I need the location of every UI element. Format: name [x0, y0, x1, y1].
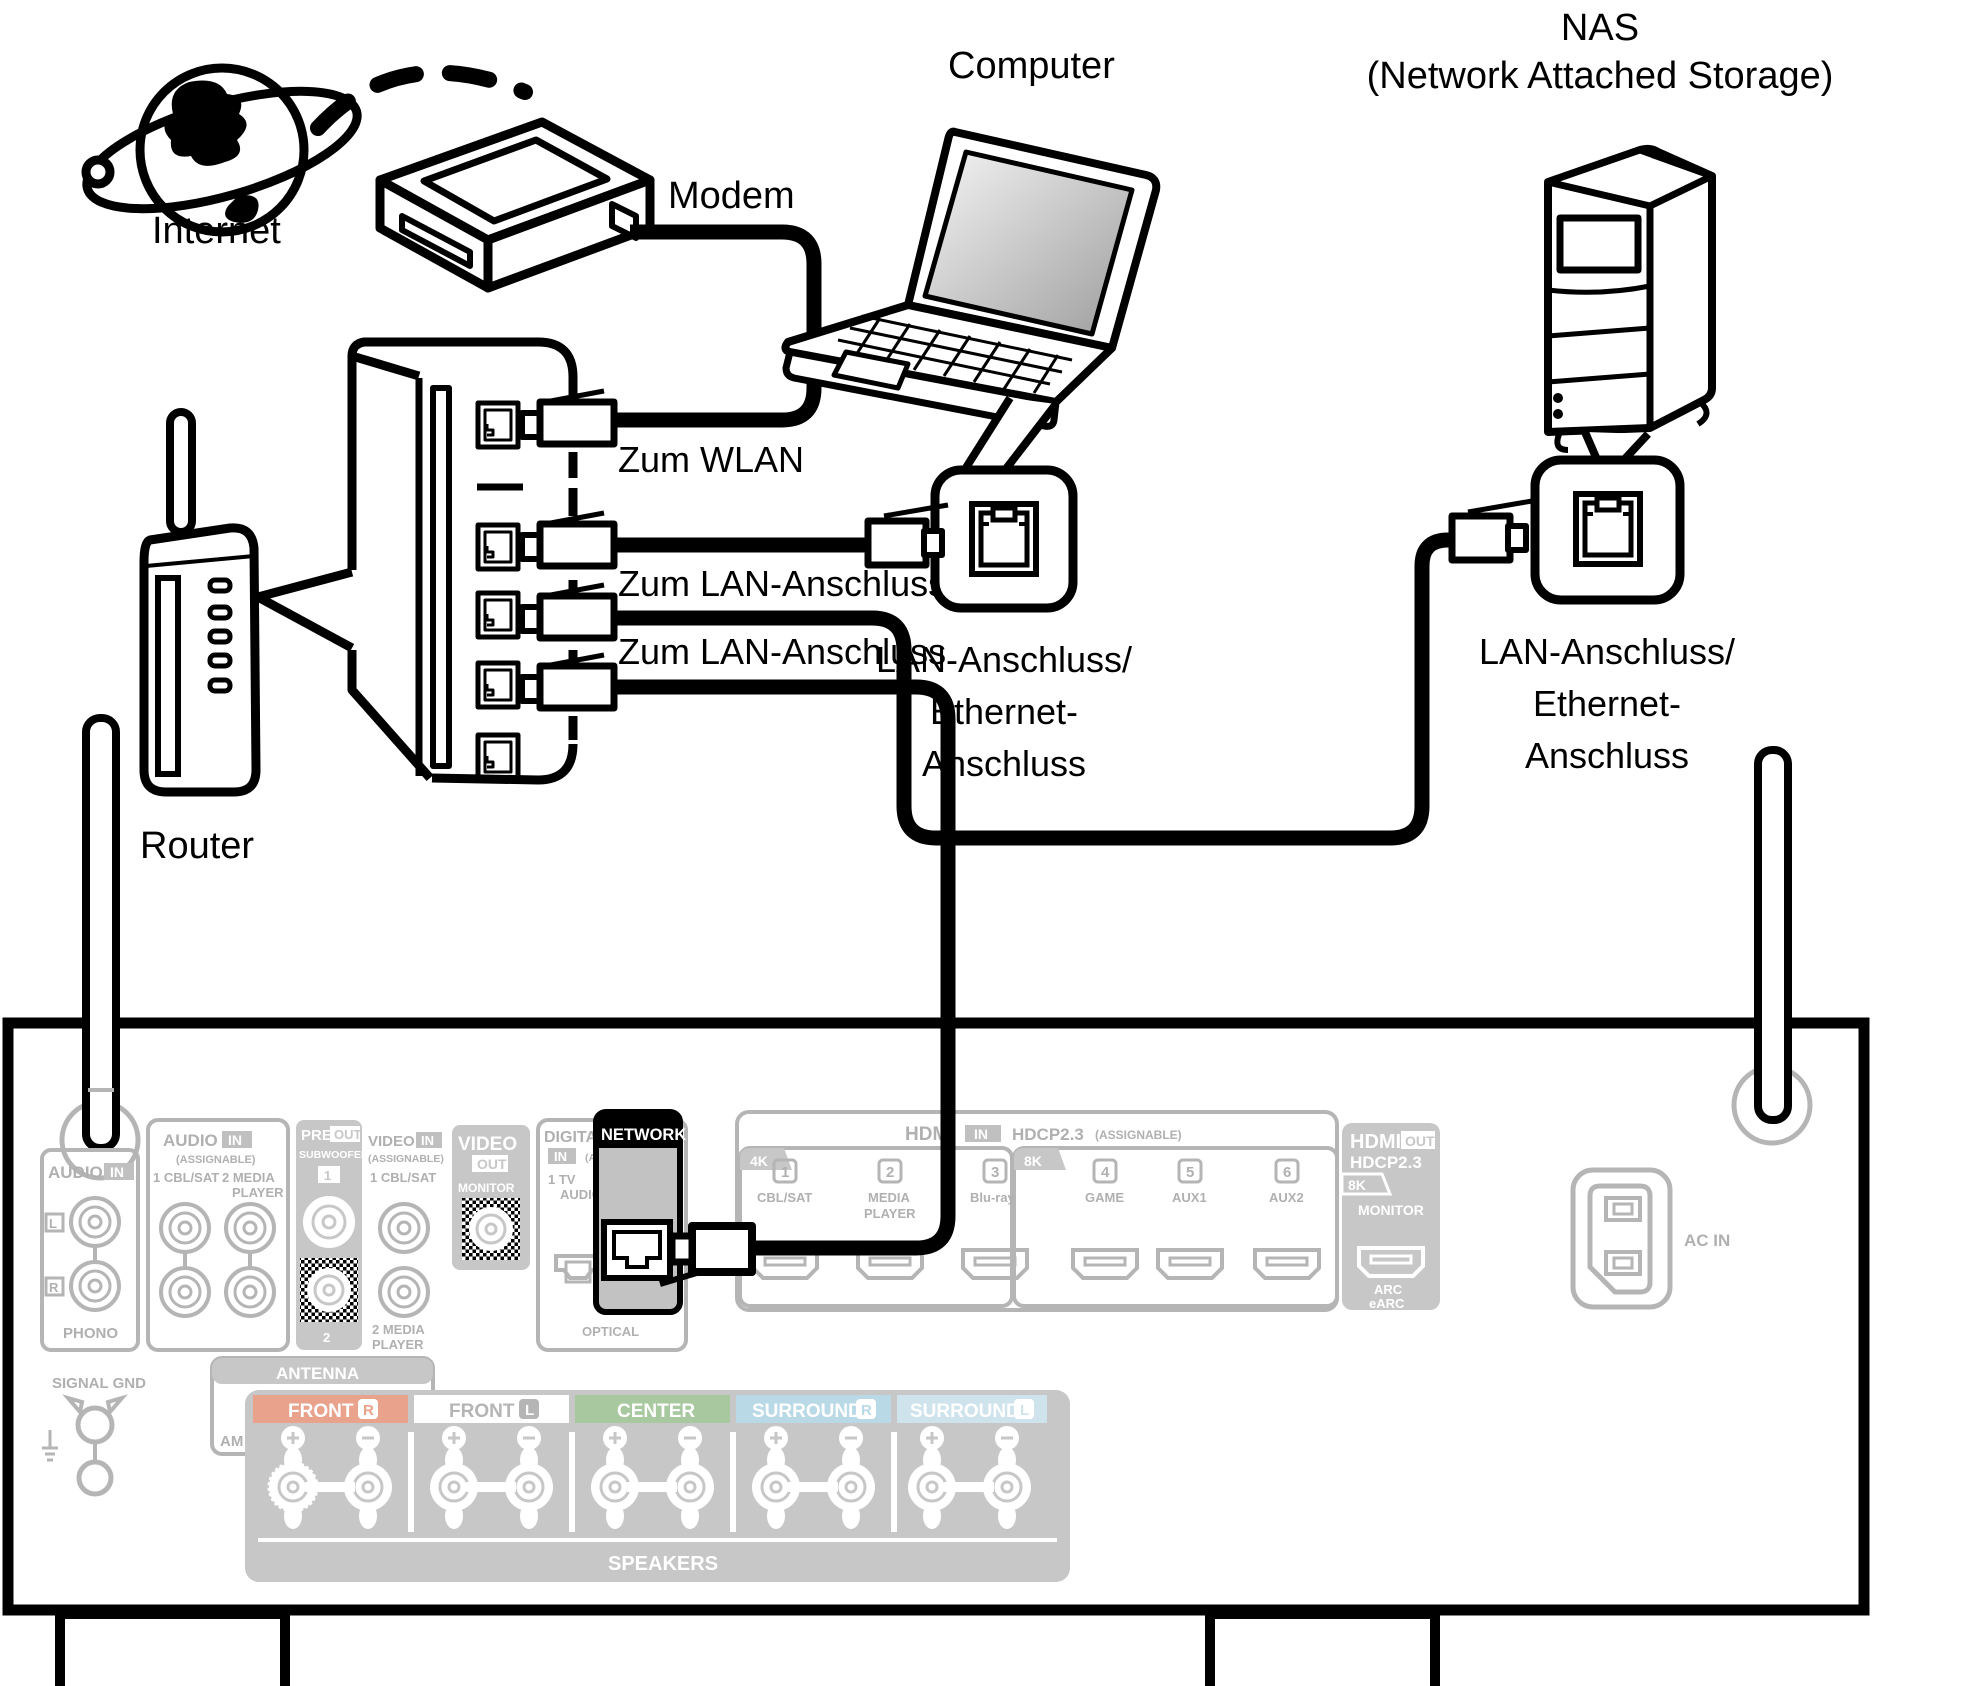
phono-r-label: R [49, 1280, 59, 1295]
speaker-ch-front-r: R [363, 1402, 374, 1419]
hdmi-in-assignable: (ASSIGNABLE) [1095, 1128, 1182, 1142]
speaker-ch-surround-l: L [1020, 1402, 1029, 1419]
videoout-badge: OUT [477, 1156, 507, 1172]
network-label: NETWORK [601, 1126, 686, 1144]
audio-in-badge: IN [110, 1164, 124, 1180]
speakers-block: FRONT R FRONT L CENTER SURROUND R SURROU… [245, 1390, 1070, 1582]
wireless-link-dashes [318, 73, 525, 128]
hdmi-out-monitor: MONITOR [1358, 1202, 1424, 1218]
videoin-2a: 2 MEDIA [372, 1322, 425, 1337]
hdmi-out-hdcp: HDCP2.3 [1350, 1153, 1422, 1172]
speaker-label-front-r: FRONT [288, 1401, 354, 1422]
receiver-rear-panel: AUDIO IN L R PHONO SIGNAL GND [8, 718, 1864, 1686]
hdmi2-name: MEDIA [868, 1190, 911, 1205]
phono-label: PHONO [63, 1325, 118, 1342]
pre-out-block: PRE OUT SUBWOOFER 1 2 [296, 1120, 369, 1350]
router-lan-jacks [478, 403, 518, 779]
videoin-2b: PLAYER [372, 1337, 424, 1352]
hdmi-out-badge: OUT [1405, 1133, 1435, 1149]
network-connection-diagram: AUDIO IN L R PHONO SIGNAL GND [0, 0, 1987, 1686]
hdmi4-num: 4 [1101, 1164, 1110, 1181]
receiver-foot-right [1210, 1614, 1435, 1686]
signal-gnd-label: SIGNAL GND [52, 1375, 146, 1392]
videoout-label: VIDEO [458, 1134, 517, 1155]
audio2-assignable: (ASSIGNABLE) [176, 1154, 256, 1166]
svg-text:LAN-Anschluss/: LAN-Anschluss/ [1479, 631, 1735, 672]
speaker-ch-front-l: L [525, 1402, 534, 1419]
phono-l-label: L [49, 1216, 57, 1231]
router-port-plugs [522, 391, 614, 708]
preout-2: 2 [323, 1330, 330, 1345]
speaker-label-surround-l: SURROUND [910, 1401, 1020, 1422]
router-icon [144, 412, 256, 792]
svg-text:LAN-Anschluss/: LAN-Anschluss/ [876, 639, 1132, 680]
am-label: AM [220, 1433, 243, 1450]
hdmi-4k-tab: 4K [750, 1153, 768, 1169]
internet-label: Internet [152, 210, 281, 252]
preout-1: 1 [324, 1168, 331, 1183]
nas-icon [1548, 149, 1712, 450]
wifi-antenna-right [1758, 750, 1788, 1120]
cable-modem-to-router [614, 232, 814, 420]
modem-icon [380, 122, 650, 288]
videoout-monitor: MONITOR [458, 1181, 515, 1195]
modem-label: Modem [668, 175, 795, 217]
hdmi-out-hdmi: HDMI [1350, 1131, 1401, 1153]
digaudio-1a: 1 TV [548, 1172, 576, 1187]
router-callout-wedge [258, 572, 352, 648]
nas-label-line1: NAS [1561, 7, 1639, 49]
hdmi2-name2: PLAYER [864, 1206, 916, 1221]
videoin-assignable: (ASSIGNABLE) [368, 1153, 444, 1165]
svg-text:Ethernet-: Ethernet- [930, 691, 1078, 732]
hdmi-out-arc: ARC [1374, 1282, 1403, 1297]
hdmi1-name: CBL/SAT [757, 1190, 812, 1205]
phono-r-jack [71, 1262, 119, 1310]
router-antenna [170, 412, 192, 532]
wifi-antenna-left [86, 718, 116, 1148]
audio2-input2a: 2 MEDIA [222, 1170, 275, 1185]
hdmi4-name: GAME [1085, 1190, 1124, 1205]
videoin-1: 1 CBL/SAT [370, 1170, 436, 1185]
computer-label: Computer [948, 45, 1115, 87]
audio-in-label: AUDIO [48, 1163, 103, 1182]
laptop-icon [785, 132, 1156, 427]
digaudio-in-badge: IN [554, 1149, 567, 1164]
computer-lan-callout [935, 470, 1073, 608]
hdmi3-name: Blu-ray [970, 1190, 1016, 1205]
svg-text:Anschluss: Anschluss [1525, 735, 1689, 776]
hdmi-out-block: HDMI OUT HDCP2.3 8K MONITOR ARC eARC [1342, 1123, 1440, 1311]
audio2-input2b: PLAYER [232, 1185, 284, 1200]
ac-in-label: AC IN [1684, 1231, 1730, 1250]
phono-l-jack [71, 1198, 119, 1246]
audio2-label: AUDIO [163, 1131, 218, 1150]
to-wlan-label: Zum WLAN [618, 439, 804, 480]
speaker-label-front-l: FRONT [449, 1401, 515, 1422]
videoin-badge: IN [421, 1133, 434, 1148]
hdmi-in-badge: IN [974, 1126, 988, 1142]
nas-lan-callout [1535, 460, 1680, 600]
hdmi5-name: AUX1 [1172, 1190, 1207, 1205]
hdmi2-num: 2 [886, 1164, 894, 1181]
hdmi6-name: AUX2 [1269, 1190, 1304, 1205]
nas-plug [1452, 501, 1532, 560]
svg-text:Anschluss: Anschluss [922, 743, 1086, 784]
optical-label: OPTICAL [582, 1324, 639, 1339]
hdmi-out-8k-tab: 8K [1348, 1177, 1366, 1193]
hdmi-in-hdcp: HDCP2.3 [1012, 1125, 1084, 1144]
antenna-label: ANTENNA [276, 1364, 359, 1383]
speaker-label-center: CENTER [617, 1401, 695, 1422]
videoin-label: VIDEO [368, 1133, 415, 1150]
receiver-foot-left [60, 1614, 285, 1686]
preout-pre: PRE [301, 1127, 332, 1144]
hdmi1-num: 1 [781, 1164, 789, 1181]
hdmi3-num: 3 [991, 1164, 999, 1181]
svg-text:Ethernet-: Ethernet- [1533, 683, 1681, 724]
speaker-label-surround-r: SURROUND [752, 1401, 862, 1422]
video-out-block: VIDEO OUT MONITOR [452, 1125, 530, 1270]
audio2-input1: 1 CBL/SAT [153, 1170, 219, 1185]
computer-port-label: LAN-Anschluss/ Ethernet- Anschluss [876, 639, 1132, 784]
speakers-label: SPEAKERS [608, 1553, 718, 1575]
nas-label-line2: (Network Attached Storage) [1367, 55, 1834, 97]
preout-out: OUT [334, 1127, 362, 1142]
audio2-in-badge: IN [228, 1132, 242, 1148]
hdmi-out-earc: eARC [1369, 1296, 1405, 1311]
hdmi-8k-tab: 8K [1024, 1153, 1042, 1169]
preout-subwoofer: SUBWOOFER [299, 1149, 369, 1161]
nas-port-label: LAN-Anschluss/ Ethernet- Anschluss [1479, 631, 1735, 776]
speaker-ch-surround-r: R [861, 1402, 872, 1419]
network-rj45-jack [604, 1222, 670, 1278]
to-lan-label-1: Zum LAN-Anschluss [618, 563, 946, 604]
hdmi5-num: 5 [1186, 1164, 1194, 1181]
router-label: Router [140, 825, 254, 867]
internet-globe-icon [75, 67, 370, 233]
hdmi6-num: 6 [1283, 1164, 1291, 1181]
